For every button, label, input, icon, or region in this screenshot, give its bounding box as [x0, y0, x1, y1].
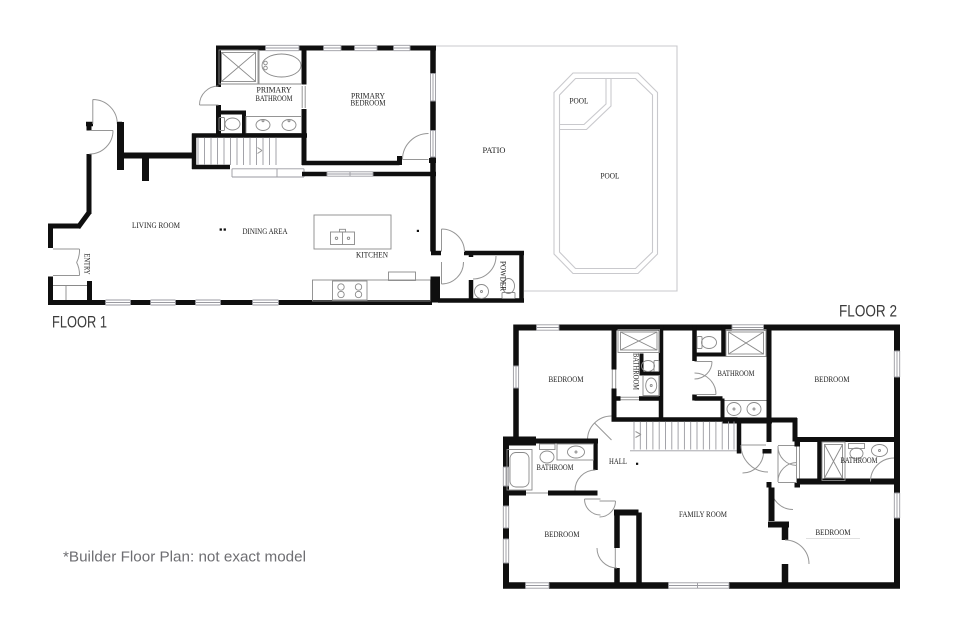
svg-text:BATHROOM: BATHROOM [718, 369, 755, 378]
svg-text:ENTRY: ENTRY [83, 254, 92, 275]
svg-text:BEDROOM: BEDROOM [545, 530, 580, 539]
svg-text:DINING AREA: DINING AREA [243, 227, 288, 236]
svg-text:BATHROOM: BATHROOM [632, 353, 641, 390]
svg-text:FAMILY ROOM: FAMILY ROOM [679, 510, 727, 519]
svg-text:BEDROOM: BEDROOM [816, 528, 851, 537]
svg-text:KITCHEN: KITCHEN [356, 251, 388, 260]
svg-text:BEDROOM: BEDROOM [815, 375, 850, 384]
svg-text:FLOOR 2: FLOOR 2 [839, 303, 897, 321]
svg-text:BEDROOM: BEDROOM [549, 375, 584, 384]
svg-text:BATHROOM: BATHROOM [841, 456, 878, 465]
svg-text:BATHROOM: BATHROOM [537, 463, 574, 472]
svg-text:PATIO: PATIO [483, 146, 506, 155]
svg-text:FLOOR 1: FLOOR 1 [52, 314, 107, 332]
svg-text:POOL: POOL [601, 172, 620, 181]
svg-text:HALL: HALL [609, 457, 627, 466]
svg-text:BEDROOM: BEDROOM [351, 98, 386, 107]
svg-text:*Builder Floor Plan: not exact: *Builder Floor Plan: not exact model [63, 550, 306, 566]
svg-text:POOL: POOL [570, 97, 589, 106]
svg-text:BATHROOM: BATHROOM [256, 94, 293, 103]
svg-text:POWDER: POWDER [499, 261, 508, 292]
svg-text:LIVING ROOM: LIVING ROOM [132, 221, 180, 230]
